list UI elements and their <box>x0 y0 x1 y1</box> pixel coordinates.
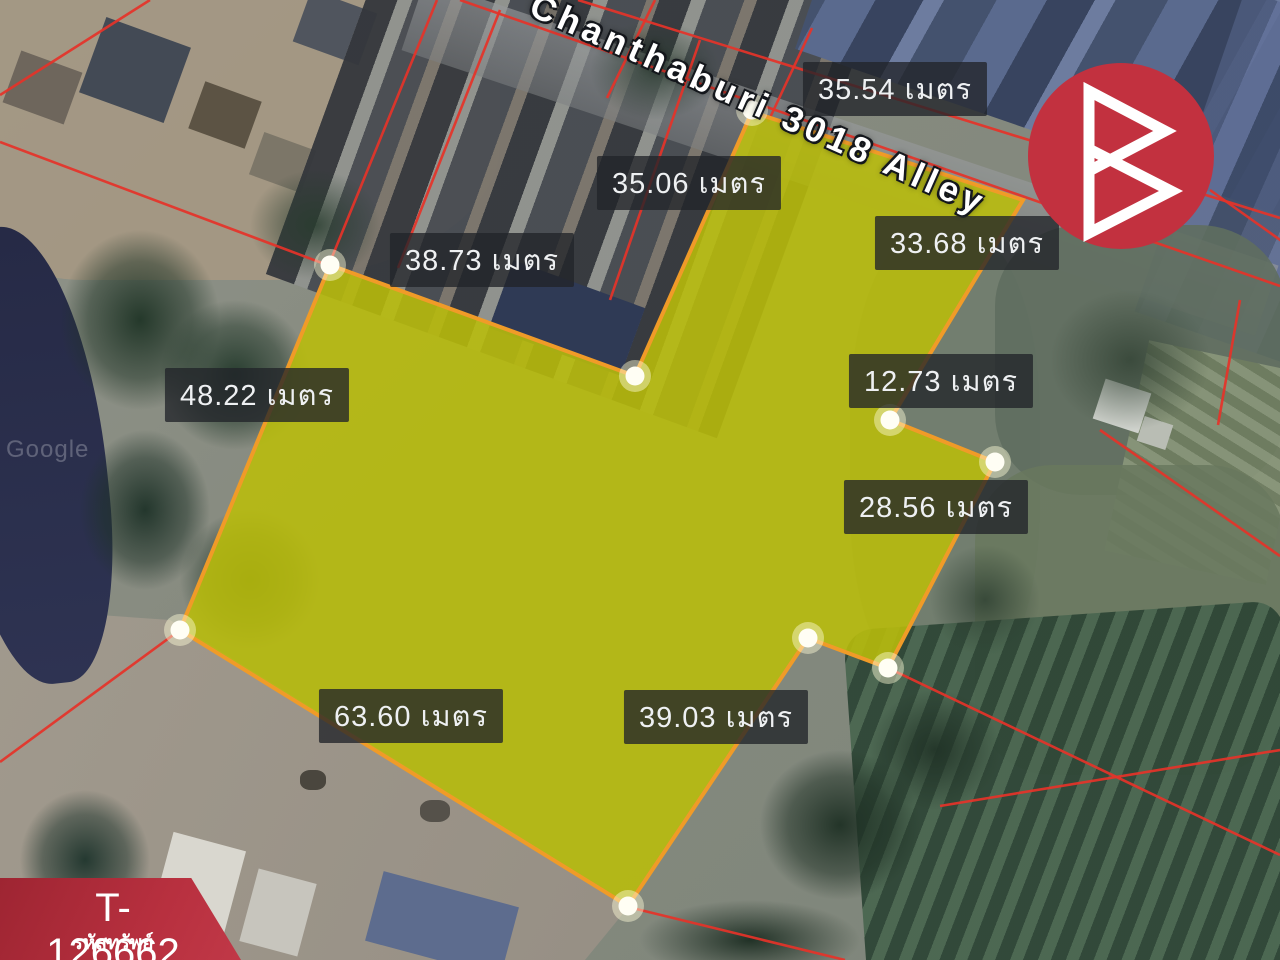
parcel-boundary-line <box>398 10 500 268</box>
vertex-dot <box>171 621 190 640</box>
vertex-dot <box>799 629 818 648</box>
parcel-boundary-line <box>1218 300 1240 425</box>
brand-logo <box>1028 63 1214 249</box>
vertex-dot <box>626 367 645 386</box>
measurement-badge: 12.73 เมตร <box>849 354 1033 408</box>
parcel-boundary-line <box>940 750 1280 806</box>
measurement-badge: 63.60 เมตร <box>319 689 503 743</box>
property-code-caption: รหัสทรัพย์ <box>38 928 188 958</box>
parcel-boundary-line <box>628 907 845 960</box>
measurement-badge: 28.56 เมตร <box>844 480 1028 534</box>
double-triangle-logo-icon <box>1028 63 1214 249</box>
vertex-dot <box>986 453 1005 472</box>
measurement-badge: 35.54 เมตร <box>803 62 987 116</box>
measurement-badge: 38.73 เมตร <box>390 233 574 287</box>
parcel-boundary-line <box>0 630 180 762</box>
parcel-boundary-line <box>1100 430 1280 556</box>
parcel-boundary-line <box>888 668 1280 855</box>
measurement-badge: 48.22 เมตร <box>165 368 349 422</box>
parcel-boundary-line <box>0 0 150 95</box>
vertex-dot <box>321 256 340 275</box>
vertex-dot <box>881 411 900 430</box>
parcel-boundary-line <box>0 142 330 266</box>
parcel-boundary-line <box>330 0 437 262</box>
measurement-badge: 39.03 เมตร <box>624 690 808 744</box>
map-canvas: Google Chanthaburi 3018 Alley T-126662 ร… <box>0 0 1280 960</box>
vertex-dot <box>619 897 638 916</box>
vertex-dot <box>879 659 898 678</box>
measurement-badge: 35.06 เมตร <box>597 156 781 210</box>
